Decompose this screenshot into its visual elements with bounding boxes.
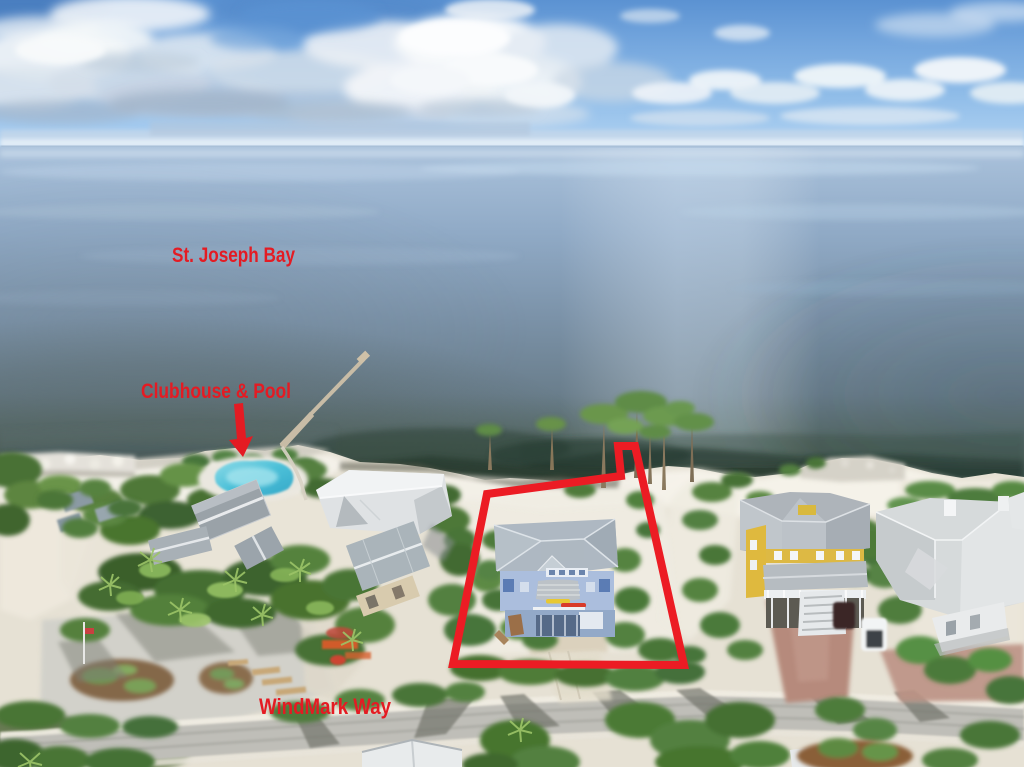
svg-text:Clubhouse & Pool: Clubhouse & Pool: [141, 380, 291, 403]
svg-text:St. Joseph Bay: St. Joseph Bay: [172, 244, 295, 267]
svg-text:WindMark Way: WindMark Way: [259, 694, 392, 719]
